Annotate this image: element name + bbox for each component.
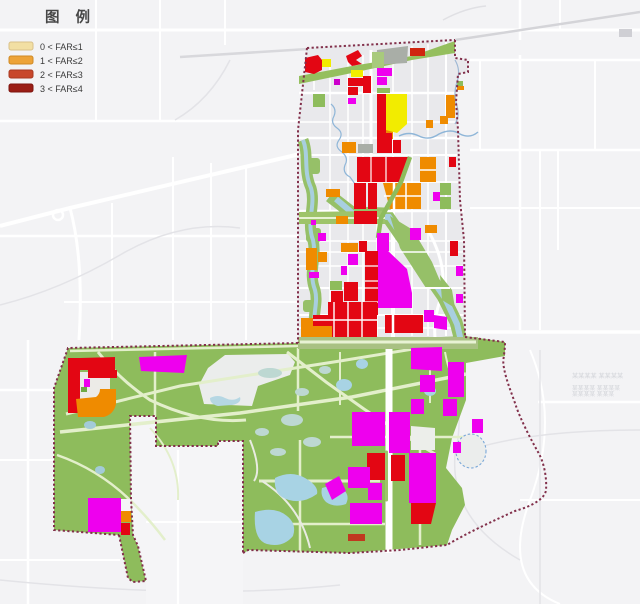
- svg-text:某某某某 某某某某: 某某某某 某某某某: [572, 372, 623, 380]
- svg-text:0 < FAR≤1: 0 < FAR≤1: [40, 42, 83, 52]
- svg-text:3 < FAR≤4: 3 < FAR≤4: [40, 84, 83, 94]
- svg-text:某某某某 某某某: 某某某某 某某某: [572, 391, 614, 398]
- svg-text:2 < FAR≤3: 2 < FAR≤3: [40, 70, 83, 80]
- svg-text:图 例: 图 例: [45, 8, 96, 26]
- svg-text:1 < FAR≤2: 1 < FAR≤2: [40, 56, 83, 66]
- svg-text:某某某某 某某某某: 某某某某 某某某某: [572, 385, 620, 392]
